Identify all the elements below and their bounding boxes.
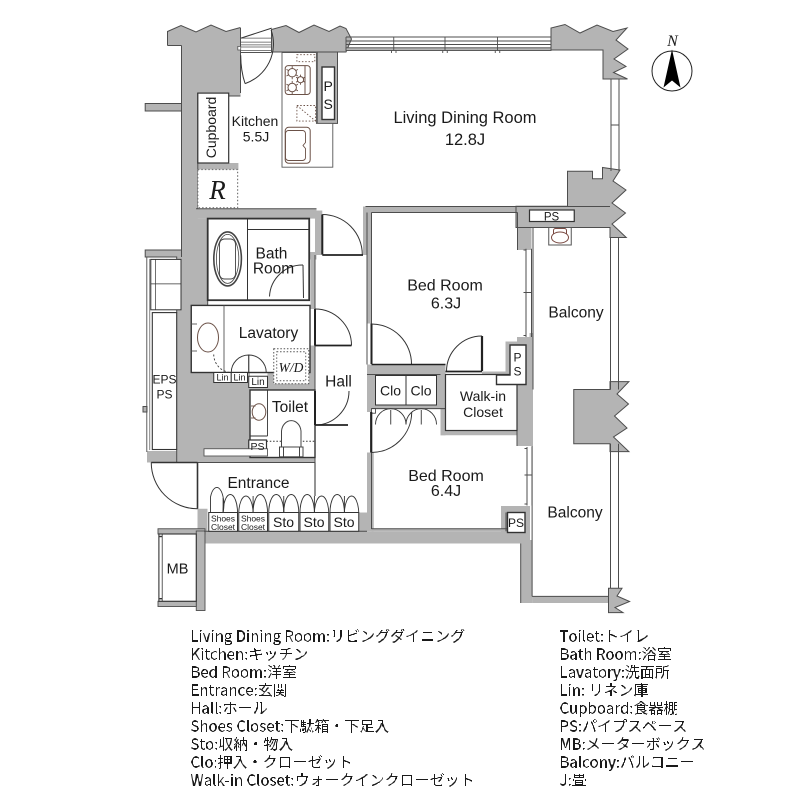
svg-text:MB: MB [167, 562, 189, 578]
svg-text:PS: PS [544, 212, 560, 224]
svg-text:6.3J: 6.3J [431, 296, 461, 313]
svg-text:EPS: EPS [152, 373, 176, 387]
svg-text:5.5J: 5.5J [243, 129, 269, 145]
svg-text:P: P [324, 78, 333, 94]
svg-text:Closet: Closet [241, 522, 266, 532]
svg-text:Kitchen: Kitchen [232, 113, 279, 129]
svg-text:Cupboard: Cupboard [203, 97, 219, 159]
svg-text:Lavatory: Lavatory [239, 325, 299, 342]
svg-text:Bed Room: Bed Room [407, 278, 483, 295]
svg-text:Entrance: Entrance [227, 475, 289, 492]
svg-text:Closet: Closet [211, 522, 236, 532]
svg-text:Lin: Lin [216, 373, 228, 383]
svg-text:Closet: Closet [463, 404, 503, 420]
svg-text:Sto: Sto [273, 514, 294, 530]
svg-text:Lin: Lin [251, 377, 264, 388]
svg-text:Hall: Hall [325, 374, 352, 391]
svg-text:12.8J: 12.8J [445, 131, 485, 149]
svg-text:Sto: Sto [333, 514, 354, 530]
svg-text:Lin: Lin [233, 373, 245, 383]
svg-text:6.4J: 6.4J [431, 483, 461, 500]
svg-text:W/D: W/D [279, 360, 304, 375]
svg-text:Clo: Clo [380, 383, 401, 399]
svg-text:S: S [513, 365, 521, 379]
svg-text:PS: PS [508, 516, 524, 530]
svg-text:Walk-in: Walk-in [460, 388, 506, 404]
svg-text:P: P [513, 351, 521, 365]
svg-text:Clo: Clo [410, 383, 431, 399]
svg-text:Balcony: Balcony [548, 305, 603, 322]
svg-text:PS: PS [250, 441, 264, 453]
svg-text:Living Dining Room: Living Dining Room [393, 109, 536, 127]
svg-text:Room: Room [253, 261, 294, 278]
svg-text:Balcony: Balcony [547, 505, 602, 522]
svg-text:Toilet: Toilet [272, 399, 309, 416]
svg-text:R: R [208, 175, 226, 205]
svg-text:PS: PS [156, 388, 172, 402]
svg-text:Sto: Sto [303, 514, 324, 530]
svg-text:N: N [666, 33, 679, 50]
svg-text:S: S [324, 96, 333, 112]
